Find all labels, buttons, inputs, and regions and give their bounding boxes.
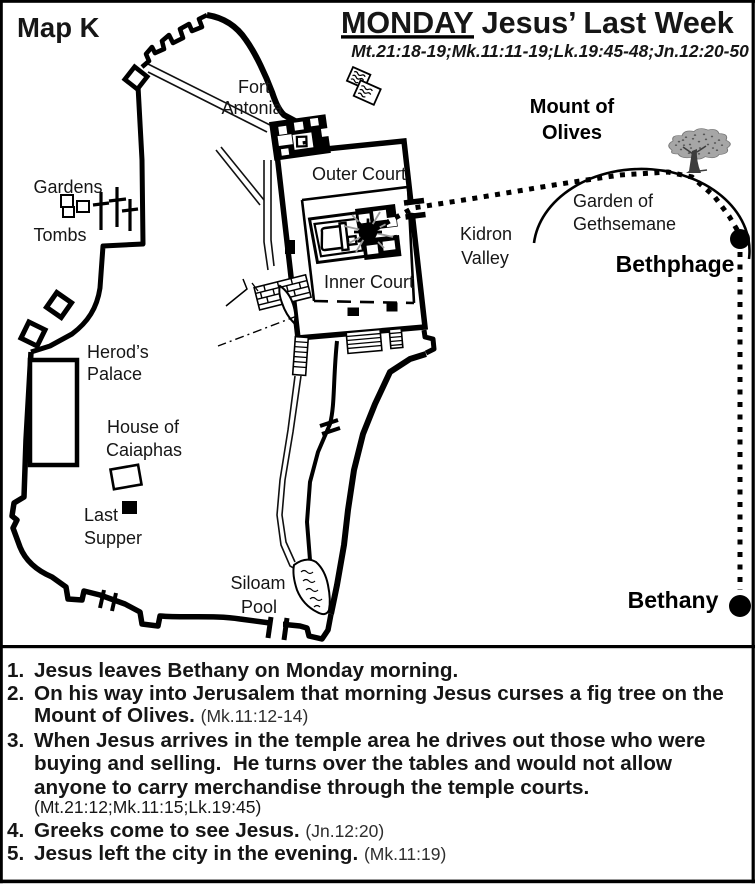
svg-text:On his way into Jerusalem that: On his way into Jerusalem that morning J…: [34, 682, 724, 705]
svg-text:Olives: Olives: [542, 122, 602, 144]
svg-text:Map K: Map K: [17, 12, 100, 43]
svg-text:(Mt.21:12;Mk.11:15;Lk.19:45): (Mt.21:12;Mk.11:15;Lk.19:45): [34, 797, 261, 817]
svg-text:5.: 5.: [7, 842, 24, 865]
svg-text:Siloam: Siloam: [230, 573, 285, 593]
svg-text:Herod’s: Herod’s: [87, 342, 149, 362]
svg-text:Caiaphas: Caiaphas: [106, 440, 182, 460]
svg-text:Supper: Supper: [84, 528, 142, 548]
svg-text:Gethsemane: Gethsemane: [573, 214, 676, 234]
svg-text:Garden of: Garden of: [573, 191, 654, 211]
svg-text:Mount of Olives. (Mk.11:12-14): Mount of Olives. (Mk.11:12-14): [34, 704, 308, 727]
svg-text:Outer Court: Outer Court: [312, 164, 406, 184]
svg-text:4.: 4.: [7, 819, 24, 842]
svg-text:Mt.21:18-19;Mk.11:11-19;Lk.19:: Mt.21:18-19;Mk.11:11-19;Lk.19:45-48;Jn.1…: [351, 41, 749, 61]
svg-text:House of: House of: [107, 417, 180, 437]
svg-text:MONDAY Jesus’ Last Week: MONDAY Jesus’ Last Week: [341, 6, 734, 40]
svg-text:1.: 1.: [7, 659, 24, 682]
svg-text:buying and selling. He turns: buying and selling. He turns over the ta…: [34, 752, 673, 775]
svg-text:Kidron: Kidron: [460, 224, 512, 244]
svg-text:Jesus left the city in the eve: Jesus left the city in the evening. (Mk.…: [34, 842, 446, 865]
svg-text:Antonia: Antonia: [221, 98, 283, 118]
svg-text:Last: Last: [84, 505, 118, 525]
svg-text:2.: 2.: [7, 682, 24, 705]
svg-text:Bethphage: Bethphage: [616, 251, 735, 277]
svg-text:When Jesus arrives in the temp: When Jesus arrives in the temple area he…: [34, 729, 705, 752]
svg-text:Fort: Fort: [238, 77, 270, 97]
svg-text:anyone to carry merchandise th: anyone to carry merchandise through the …: [34, 776, 589, 799]
svg-text:Mount of: Mount of: [530, 96, 615, 118]
svg-text:Bethany: Bethany: [628, 587, 719, 613]
svg-text:Greeks come to see Jesus. (Jn.: Greeks come to see Jesus. (Jn.12:20): [34, 819, 384, 842]
svg-text:Pool: Pool: [241, 597, 277, 617]
svg-text:Palace: Palace: [87, 364, 142, 384]
svg-text:Inner Court: Inner Court: [324, 272, 414, 292]
svg-text:Valley: Valley: [461, 248, 509, 268]
svg-text:Gardens: Gardens: [33, 177, 102, 197]
svg-text:Jesus leaves Bethany on Monday: Jesus leaves Bethany on Monday morning.: [34, 659, 458, 682]
svg-text:Tombs: Tombs: [33, 225, 86, 245]
svg-text:3.: 3.: [7, 729, 24, 752]
